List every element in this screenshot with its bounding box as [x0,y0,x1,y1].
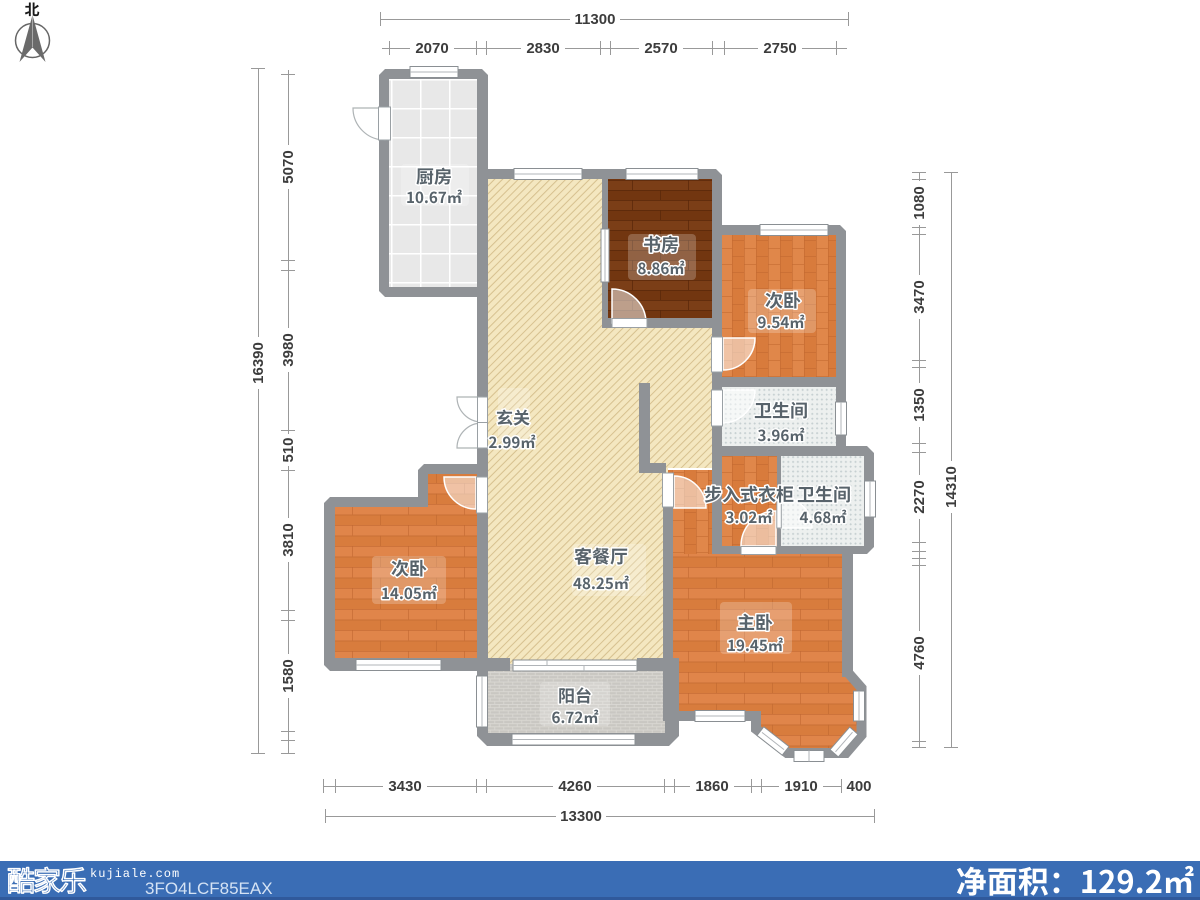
svg-text:2830: 2830 [526,40,559,57]
svg-text:1910: 1910 [784,778,817,795]
svg-text:2750: 2750 [763,40,796,57]
svg-text:3470: 3470 [911,280,928,313]
svg-text:4260: 4260 [558,778,591,795]
svg-text:1080: 1080 [911,186,928,219]
svg-text:5070: 5070 [280,150,297,183]
svg-text:3980: 3980 [280,333,297,366]
svg-text:4760: 4760 [911,636,928,669]
svg-text:11300: 11300 [575,11,616,28]
svg-text:3810: 3810 [280,523,297,556]
svg-text:13300: 13300 [560,808,602,825]
svg-text:1350: 1350 [911,388,928,421]
svg-text:2070: 2070 [415,40,448,57]
svg-text:510: 510 [280,437,297,462]
svg-text:1860: 1860 [695,778,728,795]
svg-text:2270: 2270 [911,480,928,513]
svg-text:1580: 1580 [280,659,297,692]
svg-text:14310: 14310 [943,466,960,508]
svg-text:16390: 16390 [250,342,267,384]
svg-text:3FO4LCF85EAX: 3FO4LCF85EAX [145,879,273,898]
svg-text:3430: 3430 [388,778,421,795]
svg-text:400: 400 [846,778,871,795]
svg-text:2570: 2570 [644,40,677,57]
